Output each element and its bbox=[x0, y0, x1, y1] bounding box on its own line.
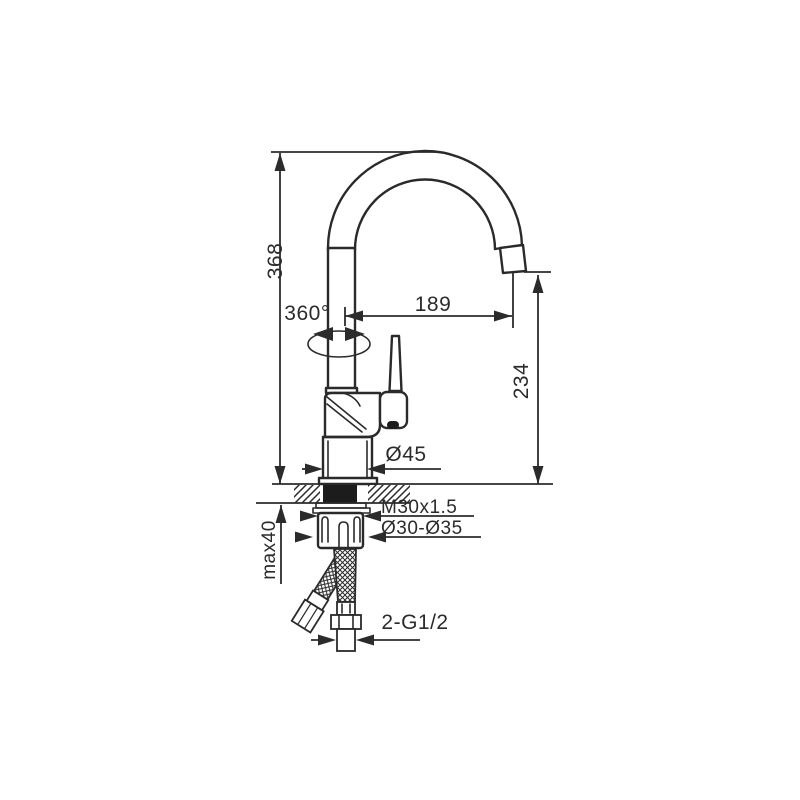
arrow-left-point bbox=[363, 511, 381, 522]
vertical-hose-braid bbox=[334, 549, 356, 602]
dim-hole-diameter-label: Ø30-Ø35 bbox=[381, 518, 463, 539]
arrow-left-point bbox=[356, 635, 374, 646]
vertical-hose-collar bbox=[337, 602, 355, 615]
arrow-right-point bbox=[305, 464, 323, 475]
vertical-hose bbox=[331, 549, 361, 651]
spout-inner-arc bbox=[355, 179, 495, 250]
faucet-spout bbox=[328, 151, 526, 273]
dim-overall-height-label: 368 bbox=[264, 243, 287, 280]
vertical-hose-hex-nut bbox=[331, 615, 361, 629]
supply-hoses bbox=[292, 549, 361, 651]
handle-stick bbox=[390, 336, 402, 391]
dim-hose-connection-label: 2-G1/2 bbox=[381, 611, 448, 634]
body-outline bbox=[325, 393, 380, 437]
arrow-right-point bbox=[300, 511, 318, 522]
arrow-left-point bbox=[367, 464, 385, 475]
handle-notch bbox=[387, 421, 399, 429]
faucet-base bbox=[319, 437, 377, 484]
arrow-up bbox=[275, 153, 286, 171]
faucet-technical-drawing: 368 189 360° 234 Ø45 bbox=[0, 0, 800, 800]
dim-swivel: 360° bbox=[284, 302, 329, 325]
swivel-symbol bbox=[308, 327, 370, 357]
arrow-up bbox=[533, 275, 544, 293]
arrow-right-point bbox=[318, 635, 336, 646]
mounting-nut bbox=[318, 513, 363, 548]
dim-max-deck-thickness-label: max40 bbox=[259, 520, 280, 580]
faucet-drawing bbox=[256, 151, 553, 651]
arrow-down bbox=[275, 466, 286, 484]
dim-spout-reach: 189 bbox=[345, 272, 513, 328]
arrow-right bbox=[494, 311, 512, 322]
dim-outlet-height: 234 bbox=[510, 272, 551, 484]
spout-outlet bbox=[500, 245, 526, 273]
arrow-down bbox=[533, 466, 544, 484]
vertical-hose-tube bbox=[337, 629, 355, 651]
dim-base-diameter-label: Ø45 bbox=[385, 443, 426, 466]
dim-swivel-label: 360° bbox=[284, 302, 329, 325]
dim-mounting-thread-label: M30x1.5 bbox=[381, 497, 457, 518]
arrow-right-point bbox=[295, 532, 313, 543]
counter-hatch-left bbox=[294, 485, 320, 503]
dim-outlet-height-label: 234 bbox=[510, 363, 533, 400]
handle-lever bbox=[380, 336, 407, 429]
faucet-riser bbox=[326, 248, 357, 393]
mounting-nut-assembly bbox=[313, 503, 370, 548]
faucet-shank bbox=[323, 484, 357, 503]
dim-max-deck-thickness: max40 bbox=[259, 505, 287, 584]
faucet-body bbox=[325, 393, 380, 437]
swivel-arrow-left bbox=[313, 327, 333, 341]
dim-spout-reach-label: 189 bbox=[415, 293, 452, 316]
